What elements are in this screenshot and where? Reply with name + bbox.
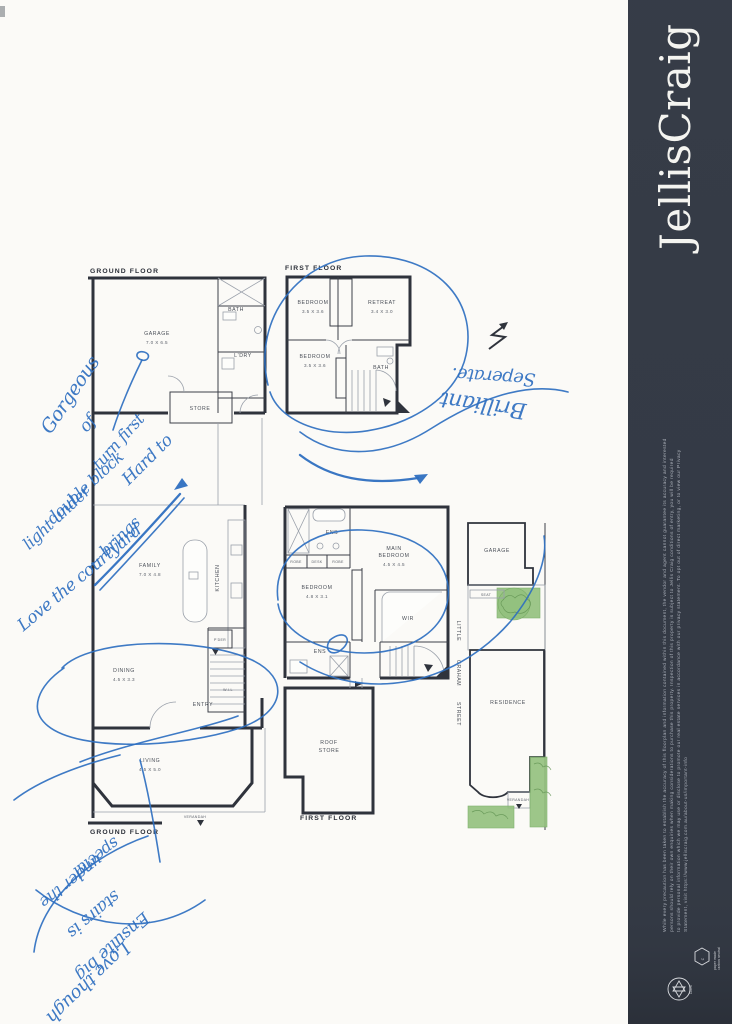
ffu-retreat-label: RETREAT (368, 300, 396, 306)
arrow-to-lower-plan (300, 455, 418, 481)
gf-garage-dims: 7.0 X 6.5 (146, 340, 168, 345)
gf-living-label: LIVING (140, 758, 161, 764)
brand-sidebar: JellisCraig While every precaution has b… (628, 0, 732, 1024)
first-floor-lower-plan: ENS ROBE DESK ROBE MAIN BEDROOM 4.5 X 4.… (285, 507, 448, 822)
carbon-line-2: carbon neutral (717, 947, 721, 970)
ffu-bedroom2-label: BEDROOM (299, 354, 330, 360)
circle-annotation-upper-plan (265, 256, 468, 432)
ffl-robe2-label: ROBE (332, 560, 344, 564)
gf-kitchen-label: KITCHEN (215, 565, 221, 592)
ffl-bedroom-dims: 4.8 X 3.1 (306, 594, 328, 599)
ffl-bedroom-label: BEDROOM (301, 585, 332, 591)
svg-text:STREET: STREET (455, 702, 461, 726)
first-floor-upper-plan: FIRST FLOOR BEDROOM 3.5 X 3.6 RETREAT 3.… (285, 265, 410, 413)
disclaimer-line-3: to provide personal information which we… (676, 449, 682, 932)
ffu-bedroom1-label: BEDROOM (297, 300, 328, 306)
ground-floor-footer: GROUND FLOOR (90, 829, 159, 836)
ffl-roof-store-label1: ROOF (320, 740, 337, 746)
gf-dining-dims: 4.5 X 3.3 (113, 677, 135, 682)
svg-text:LITTLE: LITTLE (455, 621, 461, 642)
site-verandah-label: VERANDAH (507, 798, 529, 802)
north-arrow (489, 322, 508, 349)
stroke-through-footer (140, 760, 160, 862)
ffl-main-bedroom-dims: 4.5 X 4.5 (383, 562, 405, 567)
gf-family-dims: 7.0 X 4.8 (139, 572, 161, 577)
ffu-retreat-dims: 3.4 X 3.0 (371, 309, 393, 314)
site-plan: GARAGE SEAT RESIDENCE VERANDAH LITTLE GR… (455, 523, 551, 830)
gf-family-label: FAMILY (139, 563, 161, 569)
gf-wil-label: W.I.L (223, 688, 233, 692)
circle-annotation-lower-plan (277, 530, 448, 653)
disclaimer-line-1: While every precaution has been taken to… (662, 438, 668, 932)
gf-store-label: STORE (190, 406, 211, 412)
ffl-robe1-label: ROBE (290, 560, 302, 564)
site-seat-label: SEAT (481, 593, 492, 597)
ffu-bedroom1-dims: 3.5 X 3.6 (302, 309, 324, 314)
first-floor-lower-footer: FIRST FLOOR (300, 815, 357, 822)
recycled-label: 100% (689, 985, 693, 994)
gf-entry-label: ENTRY (193, 702, 214, 708)
gf-dining-label: DINING (113, 668, 135, 674)
site-garage-label: GARAGE (484, 548, 510, 554)
gf-garage-label: GARAGE (144, 331, 170, 337)
floorplan-page: GROUND FLOOR BATH L'DRY GARAGE 7.0 X 6.5… (0, 0, 732, 1024)
brand-logo: JellisCraig (651, 23, 700, 254)
gf-ldry-label: L'DRY (234, 353, 252, 359)
disclaimer-line-2: persons should rely on their own enquiri… (669, 458, 675, 932)
ffl-ens2-label: ENS (314, 649, 326, 655)
disclaimer-line-4: Statement, visit https://www.jelliscraig… (683, 757, 689, 932)
gf-bath-label: BATH (228, 307, 244, 313)
ffu-bath-label: BATH (373, 365, 389, 371)
ffl-wir-label: WIR (402, 616, 414, 622)
gf-verandah-label: VERANDAH (184, 815, 206, 819)
site-residence-label: RESIDENCE (490, 700, 526, 706)
ffl-main-bedroom-label1: MAIN (386, 546, 401, 552)
ffu-bedroom2-dims: 3.5 X 3.6 (304, 363, 326, 368)
ffl-desk-label: DESK (312, 560, 323, 564)
gf-pdr-label: P'DER (214, 638, 226, 642)
floorplan-drawing: GROUND FLOOR BATH L'DRY GARAGE 7.0 X 6.5… (0, 0, 732, 1024)
ground-floor-title: GROUND FLOOR (90, 268, 159, 275)
ffl-roof-store-label2: STORE (319, 748, 340, 754)
ffl-main-bedroom-label2: BEDROOM (378, 553, 409, 559)
street-label: LITTLE GRAHAM STREET (455, 621, 461, 727)
